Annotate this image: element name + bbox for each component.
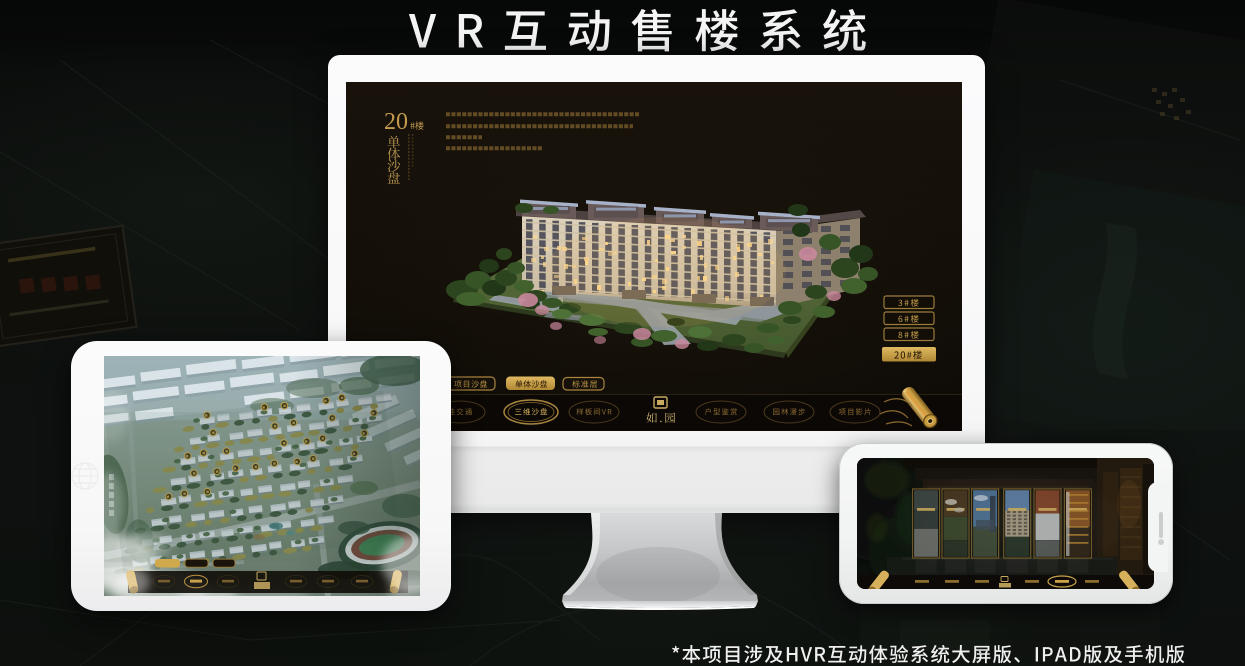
svg-text:20: 20 (384, 109, 408, 135)
